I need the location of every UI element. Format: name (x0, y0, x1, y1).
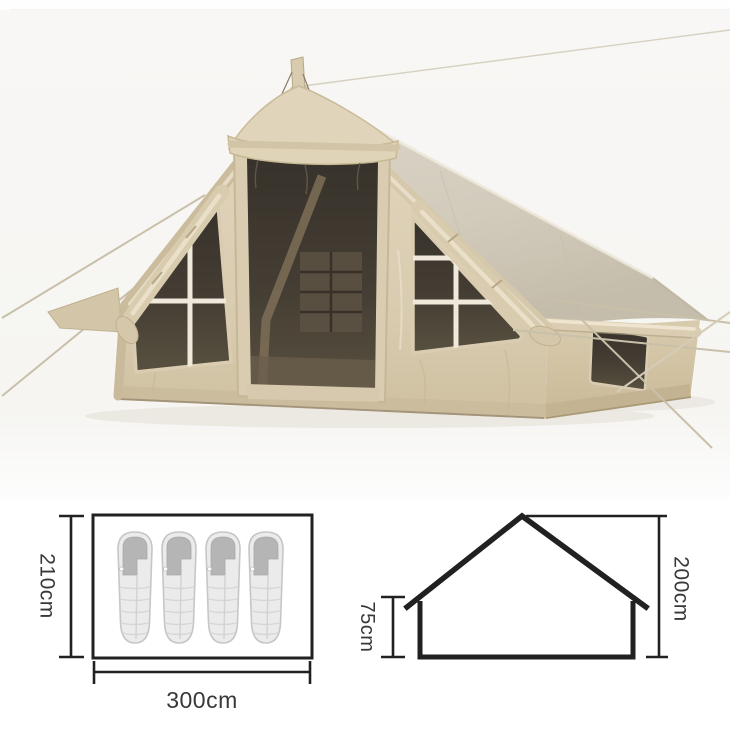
profile-outline (407, 516, 646, 657)
wall-height-dimension-line (381, 597, 405, 657)
sleeping-bag-icon (249, 532, 283, 643)
wall-height-label: 75cm (356, 602, 378, 653)
side-profile-diagram: 75cm 200cm (356, 516, 693, 657)
sleeping-bag-icon (206, 532, 240, 643)
width-label: 300cm (166, 687, 238, 713)
tent-photo-illustration (0, 0, 730, 500)
top-strip (0, 0, 730, 10)
depth-dimension-line (59, 516, 84, 657)
tent-door (228, 136, 398, 402)
depth-label: 210cm (36, 553, 59, 619)
sleeping-bag-icon (118, 532, 152, 643)
floor-plan-diagram: 210cm 300cm (36, 515, 313, 713)
width-dimension-line (94, 661, 310, 684)
product-image: 210cm 300cm 75cm 200cm (0, 0, 730, 730)
sleeping-bag-icon (162, 532, 196, 643)
peak-height-label: 200cm (670, 556, 693, 622)
